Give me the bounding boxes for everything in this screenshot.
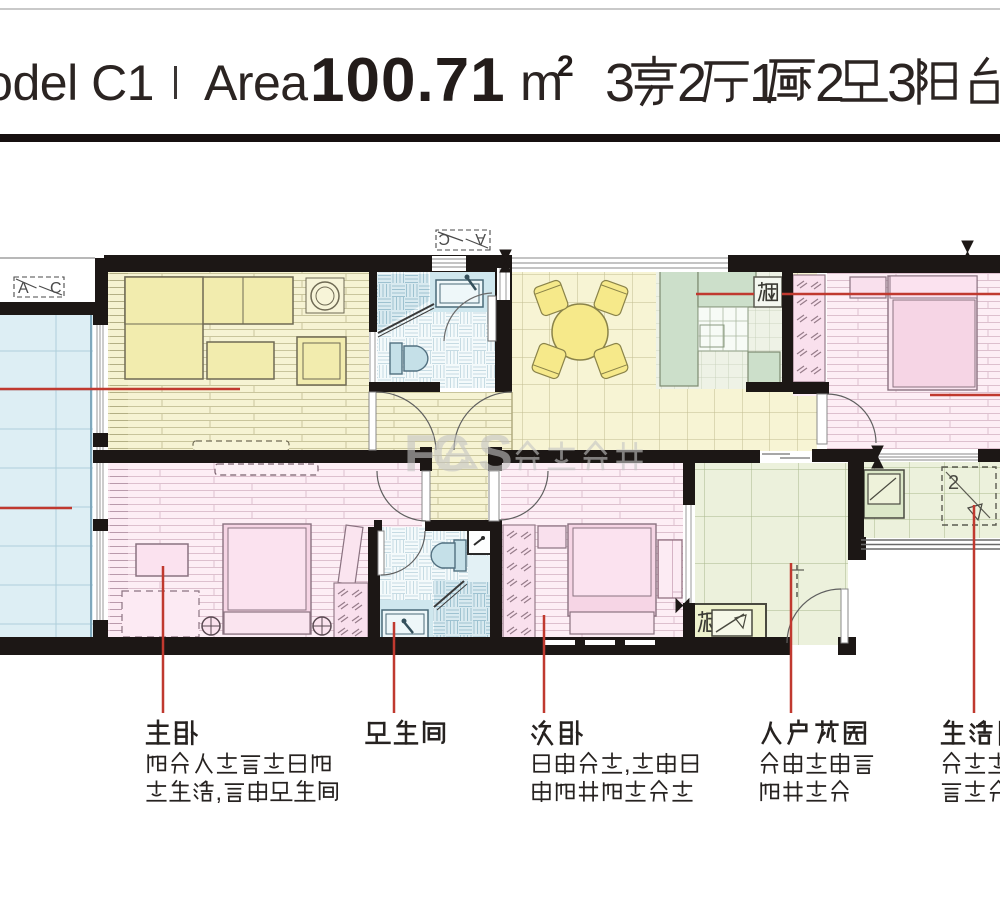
- svg-text:3: 3: [605, 53, 635, 113]
- svg-text:100.71: 100.71: [310, 46, 506, 115]
- svg-text:F: F: [404, 425, 436, 483]
- svg-text:,: ,: [624, 751, 631, 777]
- svg-text:Model C1: Model C1: [0, 55, 154, 111]
- svg-text:,: ,: [216, 779, 223, 805]
- svg-text:3: 3: [887, 53, 917, 113]
- svg-text:2: 2: [557, 50, 574, 83]
- svg-text:S: S: [478, 425, 513, 483]
- svg-text:Area: Area: [204, 55, 308, 111]
- svg-text:2: 2: [948, 472, 959, 494]
- svg-text:2: 2: [815, 53, 845, 113]
- svg-text:2: 2: [677, 53, 707, 113]
